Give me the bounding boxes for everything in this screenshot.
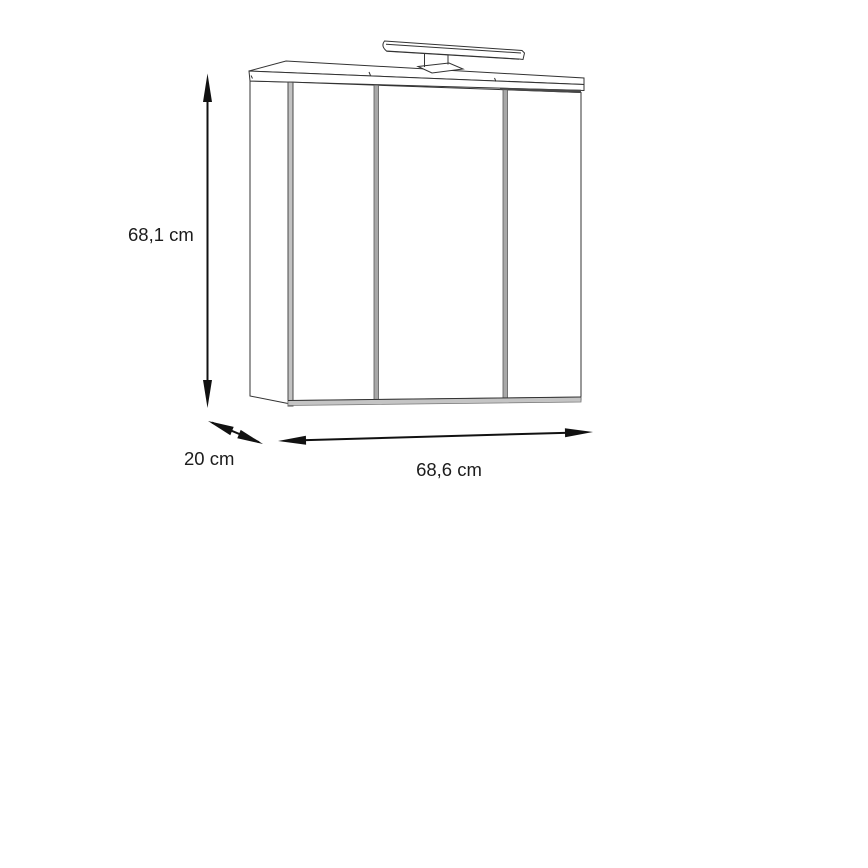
- door-hinge-strip: [288, 82, 293, 406]
- width-dimension: 68,6 cm: [278, 428, 593, 480]
- cabinet-side-panel: [250, 81, 288, 404]
- arrowhead-down-icon: [203, 380, 212, 408]
- arrowhead-downright-icon: [237, 430, 263, 444]
- door-divider: [374, 85, 379, 403]
- arrowhead-right-icon: [565, 428, 593, 437]
- cabinet-drawing: [249, 61, 584, 406]
- arrowhead-up-icon: [203, 74, 212, 103]
- depth-dimension: 20 cm: [184, 421, 263, 469]
- light-bar: [383, 41, 525, 60]
- dimension-arrow: [302, 433, 569, 441]
- arrowhead-left-icon: [278, 436, 306, 445]
- dimension-drawing-svg: 68,1 cm 20 cm 68,6 cm: [0, 0, 868, 868]
- dimension-label-depth: 20 cm: [184, 448, 234, 469]
- dimension-label-width: 68,6 cm: [416, 459, 482, 480]
- dimension-drawing-page: 68,1 cm 20 cm 68,6 cm: [0, 0, 868, 868]
- cabinet-front-doors: [288, 82, 581, 404]
- door-divider: [503, 90, 508, 401]
- dimension-label-height: 68,1 cm: [128, 224, 194, 245]
- height-dimension: 68,1 cm: [128, 74, 212, 409]
- arrowhead-upleft-icon: [208, 421, 234, 435]
